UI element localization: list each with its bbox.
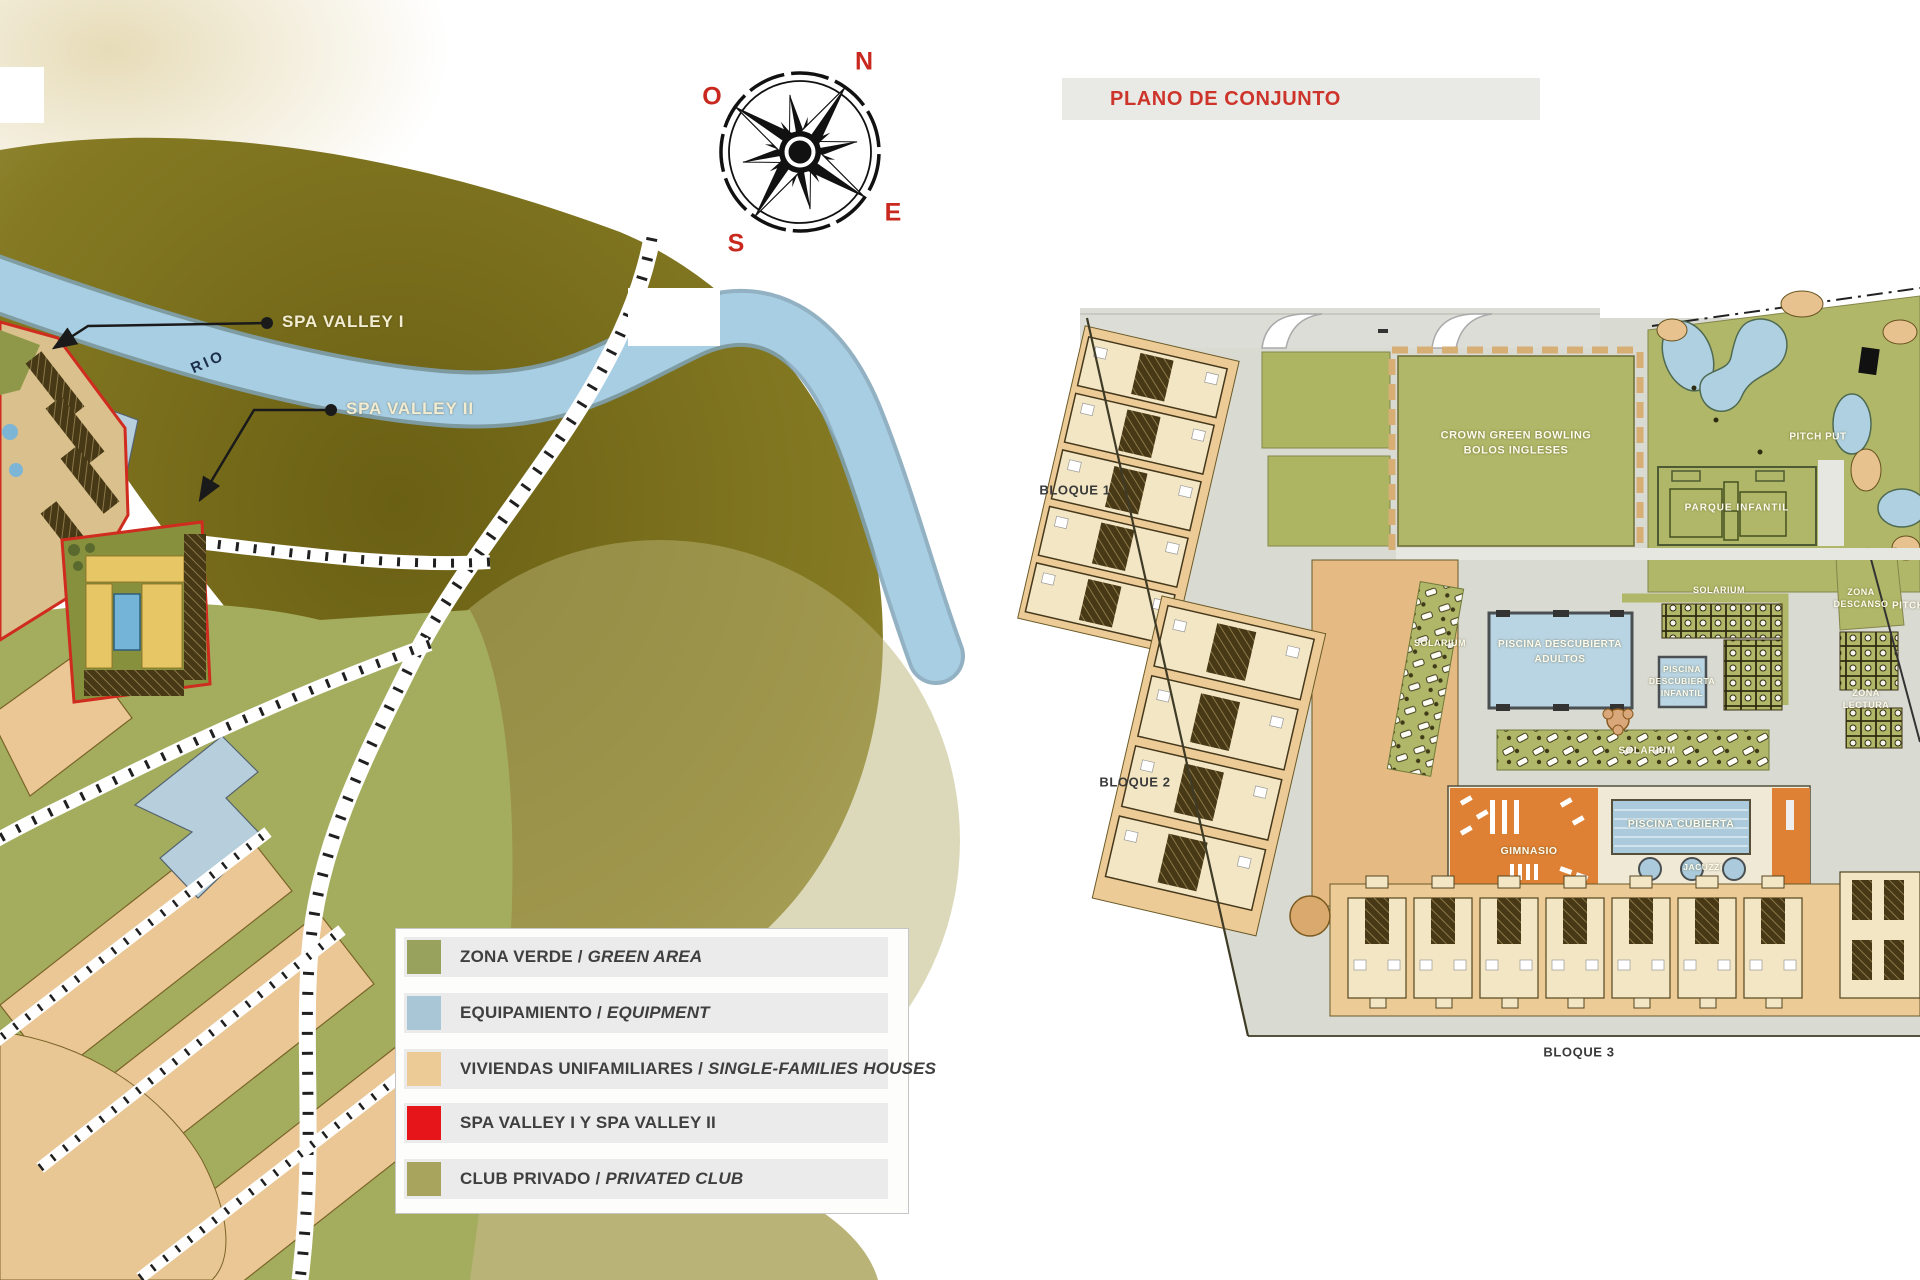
- plan-title-strip: PLANO DE CONJUNTO: [1062, 78, 1540, 120]
- access-road: [1080, 308, 1600, 348]
- green-parcel: [1262, 352, 1390, 448]
- callout-bullet: [261, 317, 273, 329]
- legend-sublabel: GREEN AREA: [588, 947, 703, 966]
- plan-title: PLANO DE CONJUNTO: [1110, 78, 1341, 120]
- green-parcel: [1268, 456, 1390, 546]
- spa-valley-2-parcel: [62, 522, 210, 702]
- legend-chip-houses: [407, 1052, 441, 1086]
- map-legend: ZONA VERDE / GREEN AREA EQUIPAMIENTO / E…: [395, 928, 909, 1214]
- legend-label: EQUIPAMIENTO /: [460, 1003, 602, 1022]
- legend-row: ZONA VERDE / GREEN AREA: [404, 937, 888, 977]
- boundary-marker: [1858, 347, 1879, 375]
- pool-infant: [1659, 657, 1706, 707]
- legend-chip-green-area: [407, 940, 441, 974]
- brochure-page: N O E S RIO SPA VALLEY I SPA VALLEY II Z…: [0, 0, 1920, 1280]
- callout-bullet: [325, 404, 337, 416]
- white-notch: [0, 67, 44, 123]
- jacuzzi-pool: [1723, 858, 1745, 880]
- legend-row: EQUIPAMIENTO / EQUIPMENT: [404, 993, 888, 1033]
- bowling-green: [1392, 350, 1640, 552]
- bloque-3-strip: [1330, 872, 1920, 1016]
- compass-rose-icon: [690, 42, 910, 262]
- legend-label: ZONA VERDE /: [460, 947, 583, 966]
- map-graphics: [0, 0, 1920, 1280]
- legend-chip-spa-valley: [407, 1106, 441, 1140]
- pitch-put-area: [1648, 288, 1920, 592]
- solarium-strip-south: [1497, 730, 1769, 770]
- legend-row: CLUB PRIVADO / PRIVATED CLUB: [404, 1159, 888, 1199]
- site-plan: [1018, 288, 1920, 1036]
- walkway: [1396, 548, 1920, 560]
- legend-label: CLUB PRIVADO /: [460, 1169, 600, 1188]
- round-planter: [1290, 896, 1330, 936]
- pool-adults: [1489, 610, 1632, 711]
- legend-row: SPA VALLEY I Y SPA VALLEY II: [404, 1103, 888, 1143]
- legend-chip-equipment: [407, 996, 441, 1030]
- legend-chip-private-club: [407, 1162, 441, 1196]
- legend-sublabel: EQUIPMENT: [607, 1003, 710, 1022]
- path: [1818, 460, 1844, 546]
- parque-infantil: [1658, 460, 1844, 546]
- legend-sublabel: SINGLE-FAMILIES HOUSES: [708, 1059, 936, 1078]
- legend-label: SPA VALLEY I Y SPA VALLEY II: [460, 1113, 716, 1132]
- legend-label: VIVIENDAS UNIFAMILIARES /: [460, 1059, 703, 1078]
- white-patch: [628, 288, 720, 346]
- legend-sublabel: PRIVATED CLUB: [605, 1169, 743, 1188]
- legend-row: VIVIENDAS UNIFAMILIARES / SINGLE-FAMILIE…: [404, 1049, 888, 1089]
